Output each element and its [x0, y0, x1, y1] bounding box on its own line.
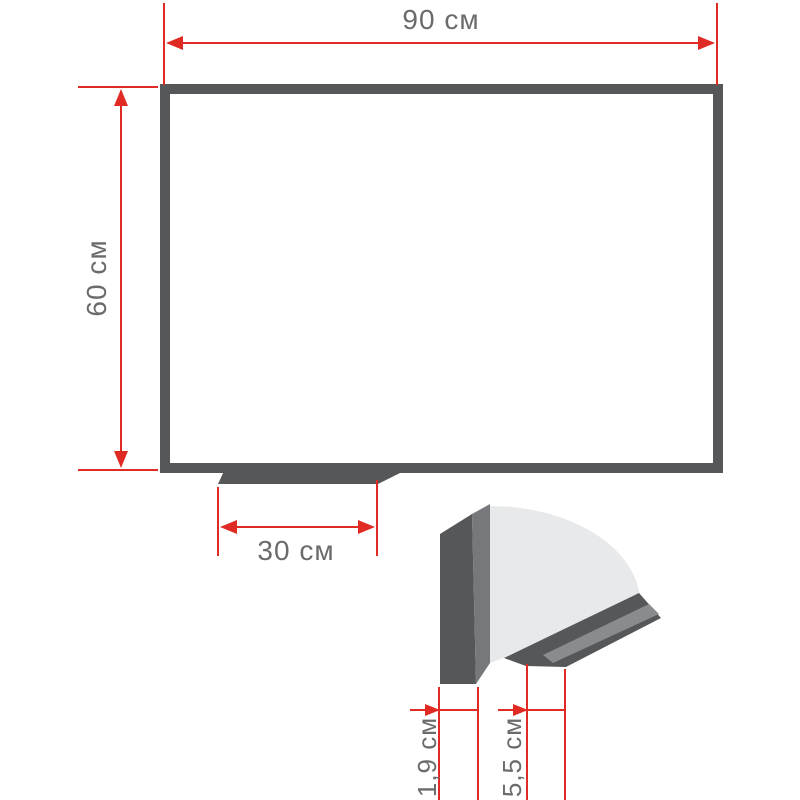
diagram-canvas: 90 см 60 см 30 см 1,9 см 5,5 см [0, 0, 800, 800]
tray-width-label: 30 см [246, 537, 346, 565]
diagram-graphics [0, 0, 800, 800]
width-arrow-left-icon [166, 36, 183, 50]
tray-width-arrow-left-icon [220, 520, 237, 534]
board-front-view [160, 84, 723, 484]
frame-depth-label: 1,9 см [414, 712, 440, 800]
board-height-label: 60 см [83, 228, 111, 328]
corner-detail-view [440, 504, 661, 684]
height-arrow-bottom-icon [114, 451, 128, 468]
board-surface [170, 94, 713, 463]
tray-width-arrow-right-icon [358, 520, 375, 534]
detail-frame-profile [440, 514, 476, 684]
width-arrow-right-icon [698, 36, 715, 50]
height-arrow-top-icon [114, 89, 128, 106]
board-width-label: 90 см [391, 6, 491, 34]
tray-depth-label: 5,5 см [499, 712, 525, 800]
